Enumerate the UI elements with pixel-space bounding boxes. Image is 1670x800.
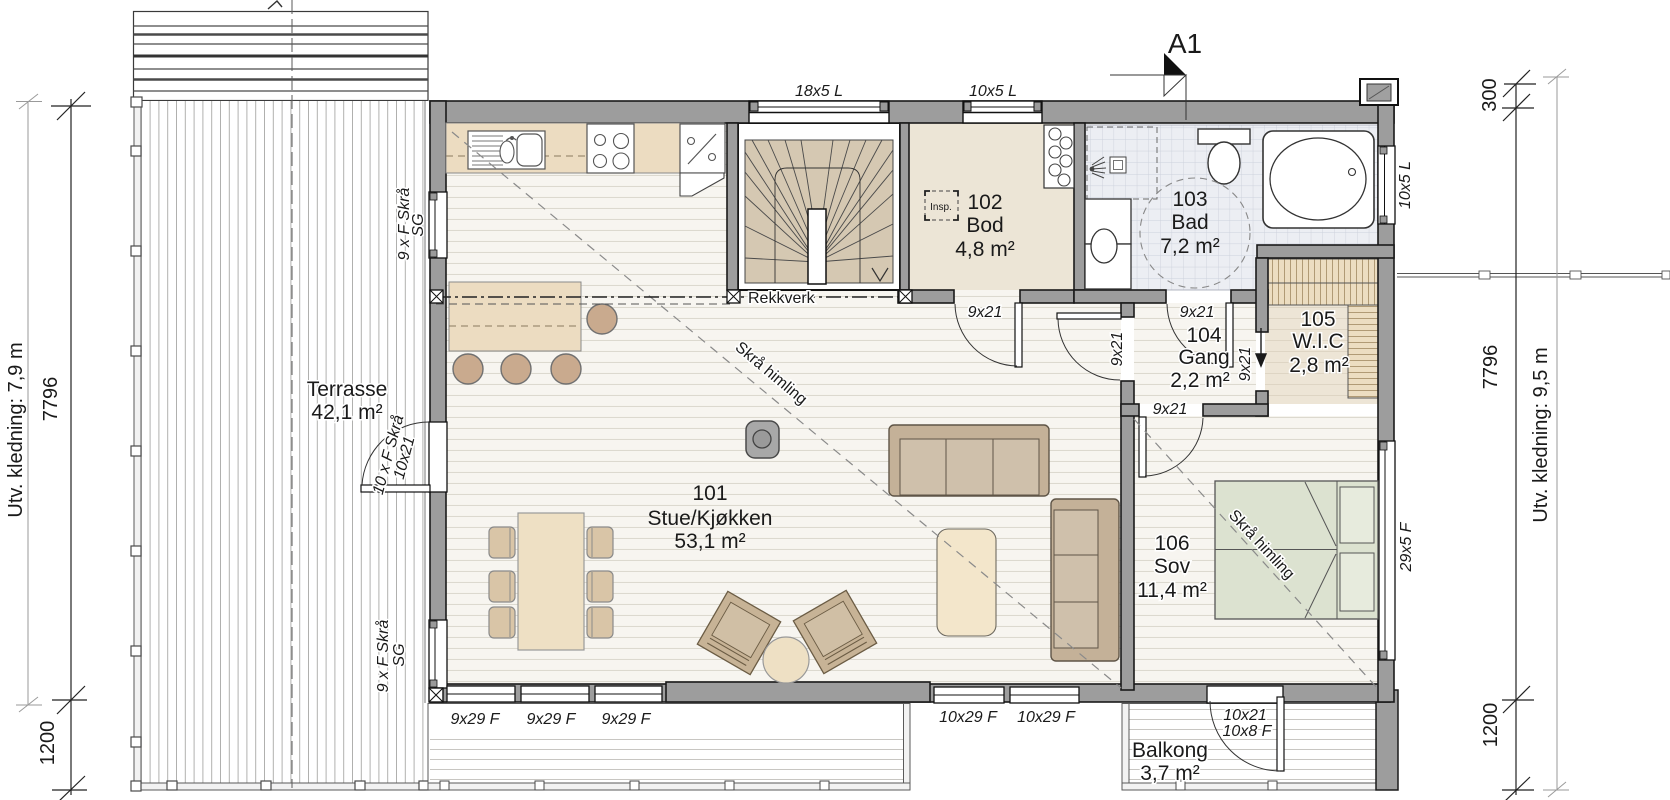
svg-text:10x5 L: 10x5 L [1397, 161, 1414, 209]
svg-text:2,2 m²: 2,2 m² [1170, 369, 1230, 392]
svg-text:105: 105 [1300, 308, 1335, 331]
svg-text:Bad: Bad [1171, 211, 1208, 234]
svg-text:Gang: Gang [1178, 346, 1229, 369]
svg-text:29x5 F: 29x5 F [1398, 521, 1415, 572]
svg-text:Stue/Kjøkken: Stue/Kjøkken [648, 507, 773, 530]
svg-text:4,8 m²: 4,8 m² [955, 238, 1015, 261]
svg-text:3,7 m²: 3,7 m² [1140, 762, 1200, 785]
svg-text:10x29 F: 10x29 F [1017, 709, 1076, 726]
svg-text:A1: A1 [1168, 28, 1202, 59]
svg-text:Balkong: Balkong [1132, 739, 1208, 762]
svg-text:1200: 1200 [1480, 703, 1502, 748]
svg-text:104: 104 [1186, 324, 1221, 347]
svg-text:9x21: 9x21 [1153, 401, 1188, 418]
svg-text:7,2 m²: 7,2 m² [1160, 235, 1220, 258]
svg-text:Terrasse: Terrasse [307, 378, 388, 401]
svg-text:300: 300 [1479, 78, 1501, 111]
svg-text:SG: SG [391, 643, 408, 666]
svg-text:42,1 m²: 42,1 m² [311, 401, 382, 424]
svg-text:10x5 L: 10x5 L [969, 83, 1017, 100]
svg-text:9x29 F: 9x29 F [451, 711, 501, 728]
svg-text:18x5 L: 18x5 L [795, 83, 843, 100]
svg-text:SG: SG [410, 213, 427, 236]
svg-text:53,1 m²: 53,1 m² [674, 530, 745, 553]
svg-text:Utv. kledning: 7,9 m: Utv. kledning: 7,9 m [5, 342, 27, 517]
svg-text:1200: 1200 [37, 721, 59, 766]
svg-text:7796: 7796 [40, 377, 62, 422]
svg-text:11,4 m²: 11,4 m² [1137, 579, 1207, 602]
svg-text:9x21: 9x21 [1180, 304, 1215, 321]
svg-text:9x21: 9x21 [1237, 347, 1254, 382]
svg-text:W.I.C: W.I.C [1292, 330, 1343, 353]
svg-text:10x29 F: 10x29 F [939, 709, 998, 726]
svg-text:10x8 F: 10x8 F [1223, 723, 1273, 740]
svg-text:9 x F Skrå: 9 x F Skrå [374, 620, 392, 693]
svg-text:Utv. kledning: 9,5 m: Utv. kledning: 9,5 m [1530, 347, 1552, 522]
svg-text:7796: 7796 [1480, 345, 1502, 390]
svg-text:102: 102 [967, 191, 1002, 214]
svg-text:9x21: 9x21 [1109, 332, 1126, 367]
svg-text:9x21: 9x21 [968, 304, 1003, 321]
svg-text:Bod: Bod [966, 214, 1003, 237]
svg-text:101: 101 [692, 482, 727, 505]
svg-text:Rekkverk: Rekkverk [748, 290, 816, 307]
svg-text:103: 103 [1172, 188, 1207, 211]
svg-text:2,8 m²: 2,8 m² [1289, 354, 1349, 377]
svg-text:106: 106 [1154, 532, 1189, 555]
svg-text:10x21: 10x21 [1223, 707, 1267, 724]
svg-text:9x29 F: 9x29 F [527, 711, 577, 728]
svg-text:Insp.: Insp. [930, 202, 952, 213]
svg-text:Sov: Sov [1154, 555, 1191, 578]
svg-text:9x29 F: 9x29 F [602, 711, 652, 728]
